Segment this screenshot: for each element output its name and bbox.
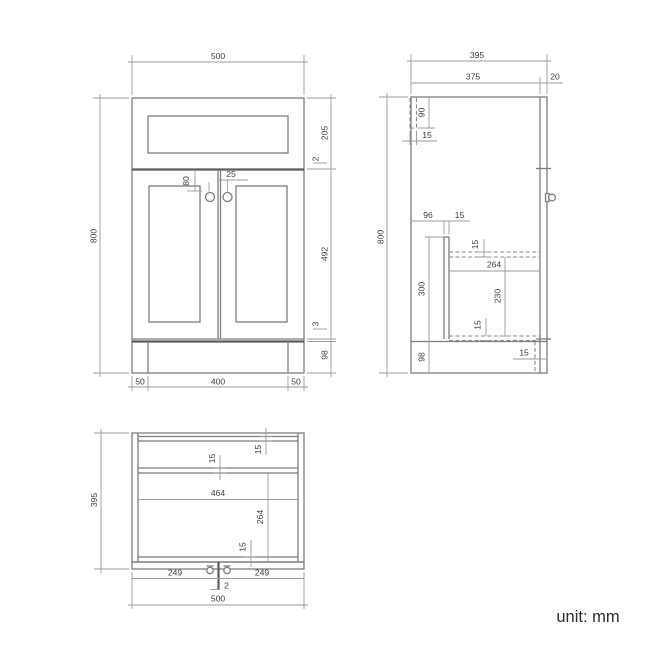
plan-view-dimension-lines	[94, 428, 308, 609]
front-dim-height: 800	[89, 229, 99, 244]
side-dim-plinth-height: 98	[417, 352, 427, 362]
plan-dim-door-right: 249	[255, 568, 270, 578]
front-dim-width: 500	[211, 51, 226, 61]
plan-dim-depth: 395	[89, 493, 99, 508]
front-view: 500 800 205 2 492 3 98 80 25 50 400 50	[89, 51, 337, 391]
front-dim-top-gap: 2	[311, 156, 321, 161]
front-dim-handle-offset: 25	[226, 169, 236, 179]
side-dim-carcass-depth: 375	[466, 72, 481, 82]
side-dim-front-thickness: 20	[550, 72, 560, 82]
side-dim-back-rail-thickness: 15	[422, 130, 432, 140]
vanity-dimension-drawing: 500 800 205 2 492 3 98 80 25 50 400 50	[0, 0, 650, 650]
front-dim-leg-span: 400	[211, 377, 226, 387]
front-dim-door-height: 492	[320, 247, 330, 262]
plan-dim-rail-thickness: 15	[207, 454, 217, 464]
side-dim-total-depth: 395	[470, 50, 485, 60]
side-view-dimension-lines	[379, 54, 563, 377]
side-dim-runner-setback: 96	[423, 210, 433, 220]
front-view-outline	[132, 98, 304, 373]
front-dim-leg-left: 50	[135, 377, 145, 387]
technical-drawing-canvas: 500 800 205 2 492 3 98 80 25 50 400 50	[0, 0, 650, 650]
plan-view: 395 15 15 464 264 15 249 2 249 500	[89, 428, 308, 609]
side-dim-runner-height: 300	[417, 282, 427, 297]
side-dim-runner-thickness: 15	[455, 210, 465, 220]
side-view-outline	[410, 97, 555, 373]
plan-left-door-knob	[207, 566, 214, 574]
plan-dim-door-gap: 2	[224, 581, 229, 591]
side-door-handle	[546, 194, 556, 202]
right-door-handle	[223, 193, 232, 202]
side-dim-shelf-thickness: 15	[470, 240, 480, 250]
plan-view-outline	[132, 433, 304, 590]
plan-dim-back-panel-thickness: 15	[253, 445, 263, 455]
front-dim-plinth: 98	[320, 350, 330, 360]
front-dim-handle-drop: 80	[181, 176, 191, 186]
front-dim-bottom-gap: 3	[311, 321, 321, 326]
left-door-handle	[206, 193, 215, 202]
side-dim-back-rail-height: 90	[417, 108, 427, 118]
plan-dim-width: 500	[211, 594, 226, 604]
plan-right-door-knob	[224, 566, 231, 574]
plan-dim-interior-width: 464	[211, 488, 226, 498]
side-dim-bottom-panel-thickness: 15	[473, 320, 483, 330]
front-dim-top-section: 205	[320, 126, 330, 141]
side-dim-shelf-depth: 264	[487, 260, 502, 270]
plan-dim-front-panel-thickness: 15	[238, 542, 248, 552]
side-dim-back-leg-thickness: 15	[519, 348, 529, 358]
unit-label: unit: mm	[556, 608, 619, 626]
plan-dim-door-left: 249	[168, 568, 183, 578]
side-view: 395 375 20 800 90 15 96 15 15 264 230 30…	[376, 50, 564, 377]
plan-dim-interior-depth: 264	[255, 510, 265, 525]
side-dim-height: 800	[376, 230, 386, 245]
side-dim-shelf-to-bottom: 230	[493, 289, 503, 304]
front-dim-leg-right: 50	[291, 377, 301, 387]
